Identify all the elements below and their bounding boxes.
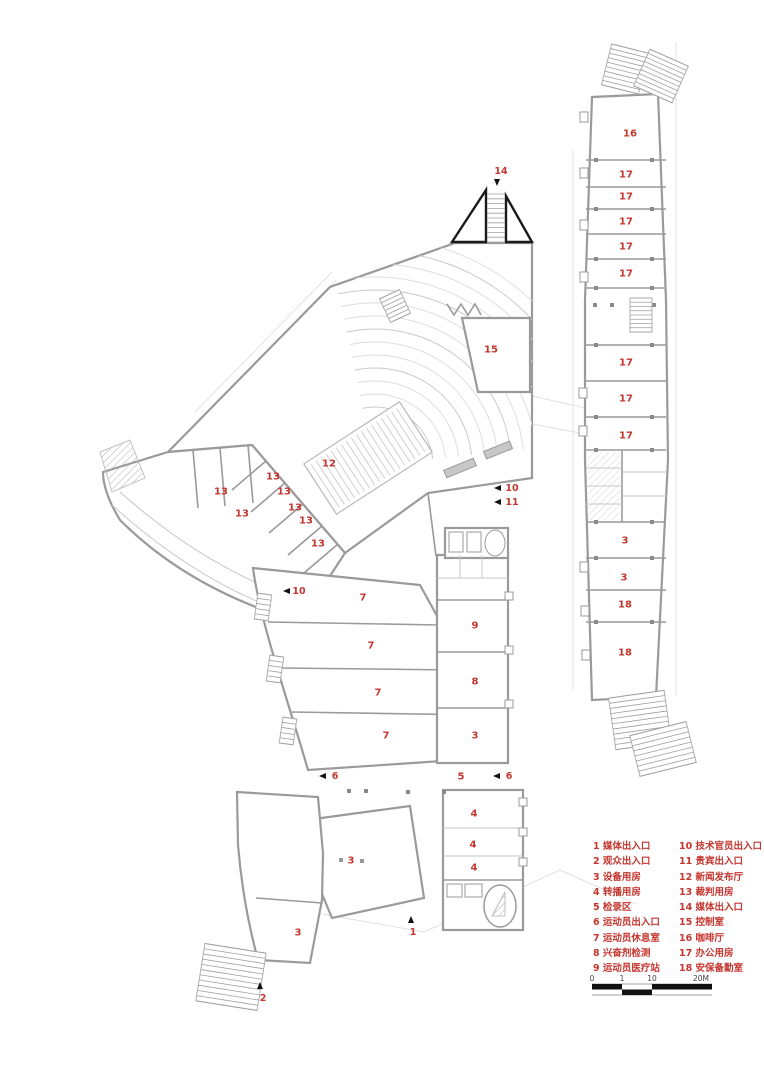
room-label-3: 3 <box>472 731 479 742</box>
room-label-13: 13 <box>277 487 291 498</box>
room-label-18: 18 <box>618 600 632 611</box>
legend-item-16: 16 咖啡厅 <box>679 931 762 946</box>
southwest-wing <box>237 792 323 963</box>
stair <box>266 655 283 683</box>
room-label-4: 4 <box>470 840 477 851</box>
legend-item-5: 5 检录区 <box>593 900 660 915</box>
stair <box>196 944 266 1011</box>
entrance-number: 14 <box>494 166 508 177</box>
entrance-marker-1: 1 <box>408 916 416 938</box>
entrance-marker-11: 11 <box>494 497 519 508</box>
legend-item-9: 9 运动员医疗站 <box>593 961 660 976</box>
entrance-marker-6: 6 <box>319 771 339 782</box>
entrance-number: 6 <box>506 771 513 782</box>
room-label-12: 12 <box>322 459 336 470</box>
room-label-4: 4 <box>471 863 478 874</box>
room-label-4: 4 <box>471 809 478 820</box>
room-label-17: 17 <box>619 170 633 181</box>
room-label-13: 13 <box>311 539 325 550</box>
entrance-marker-14: 14 <box>494 166 508 186</box>
floor-plan-page: 011020M 16171717171717171733181815121313… <box>0 0 764 1080</box>
room-label-7: 7 <box>360 593 367 604</box>
legend-item-4: 4 转播用房 <box>593 885 660 900</box>
room-label-13: 13 <box>266 472 280 483</box>
legend-item-8: 8 兴奋剂检测 <box>593 946 660 961</box>
room-label-17: 17 <box>619 242 633 253</box>
entrance-arrow-icon <box>493 773 500 779</box>
room-label-18: 18 <box>618 648 632 659</box>
entrance-number: 2 <box>260 993 267 1004</box>
legend-item-18: 18 安保备勤室 <box>679 961 762 976</box>
room-label-17: 17 <box>619 358 633 369</box>
entrance-arrow-icon <box>494 485 501 491</box>
room-label-17: 17 <box>619 431 633 442</box>
room-label-5: 5 <box>458 772 465 783</box>
legend-item-14: 14 媒体出入口 <box>679 900 762 915</box>
entrance-number: 10 <box>292 586 306 597</box>
room-label-16: 16 <box>623 129 637 140</box>
room-label-15: 15 <box>484 345 498 356</box>
legend-item-2: 2 观众出入口 <box>593 854 660 869</box>
stair <box>254 593 271 621</box>
room-label-3: 3 <box>295 928 302 939</box>
legend-item-6: 6 运动员出入口 <box>593 915 660 930</box>
entrance-arrow-icon <box>319 773 326 779</box>
entrance-stair-top <box>452 190 532 242</box>
entrance-number: 1 <box>410 927 417 938</box>
room-label-9: 9 <box>472 621 479 632</box>
room-label-7: 7 <box>383 731 390 742</box>
entrance-arrow-icon <box>408 916 414 923</box>
room-label-17: 17 <box>619 217 633 228</box>
entrance-arrow-icon <box>494 499 501 505</box>
legend-item-13: 13 裁判用房 <box>679 885 762 900</box>
legend-item-11: 11 贵宾出入口 <box>679 854 762 869</box>
room-label-3: 3 <box>621 573 628 584</box>
room-label-7: 7 <box>375 688 382 699</box>
room-label-3: 3 <box>348 856 355 867</box>
broadcast-block <box>443 790 523 930</box>
legend-item-17: 17 办公用房 <box>679 946 762 961</box>
room-label-3: 3 <box>622 536 629 547</box>
room-label-17: 17 <box>619 269 633 280</box>
room-label-8: 8 <box>472 677 479 688</box>
entrance-number: 6 <box>332 771 339 782</box>
room-label-17: 17 <box>619 394 633 405</box>
entrance-number: 10 <box>505 483 519 494</box>
legend-column-left: 1 媒体出入口2 观众出入口3 设备用房4 转播用房5 检录区6 运动员出入口7… <box>593 839 660 977</box>
legend-column-right: 10 技术官员出入口11 贵宾出入口12 新闻发布厅13 裁判用房14 媒体出入… <box>679 839 762 977</box>
stair <box>279 717 296 745</box>
entrance-marker-6: 6 <box>493 771 513 782</box>
scale-bar: 011020M <box>590 974 712 995</box>
stair <box>630 298 652 332</box>
entrance-number: 11 <box>505 497 518 508</box>
medical-block <box>437 528 508 763</box>
legend-item-10: 10 技术官员出入口 <box>679 839 762 854</box>
legend-item-7: 7 运动员休息室 <box>593 931 660 946</box>
legend-item-12: 12 新闻发布厅 <box>679 870 762 885</box>
room-label-13: 13 <box>235 509 249 520</box>
stair <box>487 194 505 242</box>
entrance-marker-10: 10 <box>494 483 519 494</box>
room-label-13: 13 <box>299 516 313 527</box>
room-label-13: 13 <box>214 487 228 498</box>
legend-item-1: 1 媒体出入口 <box>593 839 660 854</box>
room-label-7: 7 <box>368 641 375 652</box>
legend-item-15: 15 控制室 <box>679 915 762 930</box>
entrance-arrow-icon <box>494 179 500 186</box>
legend-item-3: 3 设备用房 <box>593 870 660 885</box>
room-label-17: 17 <box>619 192 633 203</box>
room-label-13: 13 <box>288 503 302 514</box>
